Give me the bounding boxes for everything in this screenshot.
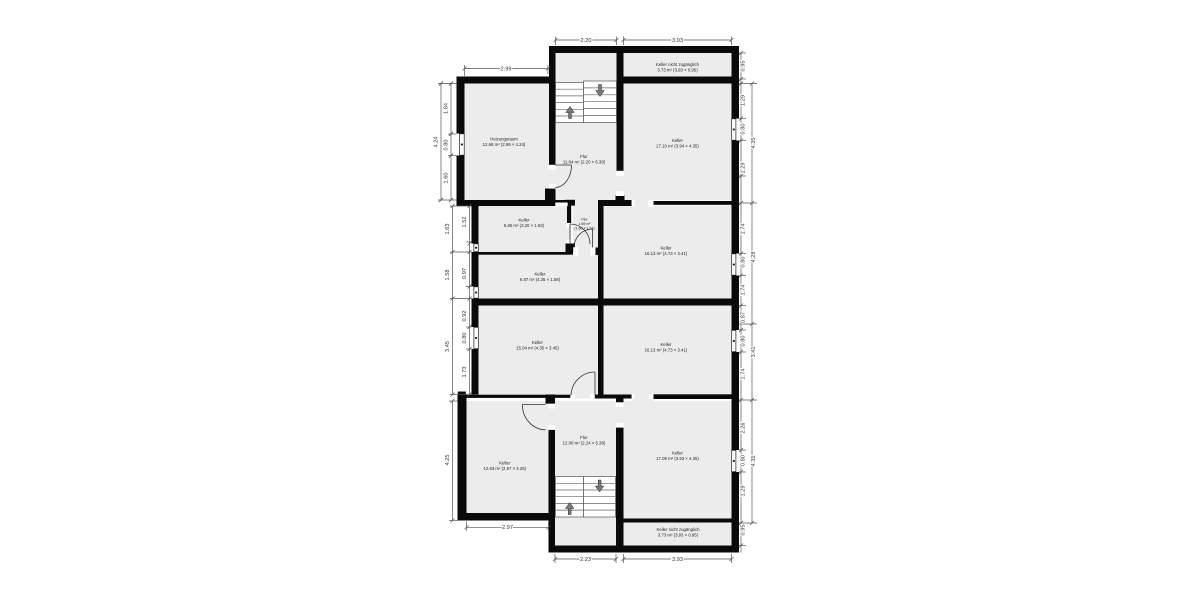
svg-text:1.60: 1.60 xyxy=(444,173,450,184)
svg-text:0.95: 0.95 xyxy=(741,61,747,72)
svg-text:Keller: Keller xyxy=(672,138,684,143)
svg-text:Keller: Keller xyxy=(532,340,544,345)
svg-text:12.68 m² (2.99 × 4.24): 12.68 m² (2.99 × 4.24) xyxy=(483,142,526,147)
svg-text:2.97: 2.97 xyxy=(502,525,513,531)
svg-text:6.87 m² (4.35 × 1.58): 6.87 m² (4.35 × 1.58) xyxy=(520,277,561,282)
svg-text:0.80: 0.80 xyxy=(741,336,747,347)
svg-text:4.35: 4.35 xyxy=(751,138,757,149)
svg-text:0.80: 0.80 xyxy=(741,124,747,135)
svg-text:3.93: 3.93 xyxy=(672,38,683,44)
svg-text:16.13 m² (4.73 × 3.41): 16.13 m² (4.73 × 3.41) xyxy=(645,251,688,256)
svg-text:0.80: 0.80 xyxy=(741,257,747,268)
svg-text:4.24: 4.24 xyxy=(434,137,440,148)
svg-text:Keller: Keller xyxy=(672,451,684,456)
svg-text:0.80: 0.80 xyxy=(462,333,468,344)
svg-text:0.92: 0.92 xyxy=(462,311,468,322)
svg-text:1.52: 1.52 xyxy=(462,217,468,228)
svg-text:3.41: 3.41 xyxy=(751,347,757,358)
svg-text:(1.60 × 1.54): (1.60 × 1.54) xyxy=(574,227,594,231)
svg-text:3.73 m² (3.93 × 0.95): 3.73 m² (3.93 × 0.95) xyxy=(658,532,699,537)
svg-text:5.65 m² (3.20 × 1.63): 5.65 m² (3.20 × 1.63) xyxy=(504,223,545,228)
svg-text:12.00 m² (2.24 × 5.38): 12.00 m² (2.24 × 5.38) xyxy=(563,440,606,445)
svg-text:Keller nicht zugänglich: Keller nicht zugänglich xyxy=(657,527,701,532)
svg-text:Keller: Keller xyxy=(535,272,547,277)
svg-text:1.74: 1.74 xyxy=(741,369,747,380)
svg-text:Keller nicht zugänglich: Keller nicht zugänglich xyxy=(656,62,700,67)
svg-text:3.73 m² (3.93 × 0.95): 3.73 m² (3.93 × 0.95) xyxy=(657,67,698,72)
svg-text:2.26: 2.26 xyxy=(741,423,747,434)
svg-text:0.87: 0.87 xyxy=(741,312,747,323)
svg-text:4.25: 4.25 xyxy=(445,455,451,466)
svg-text:3.45: 3.45 xyxy=(445,341,451,352)
svg-text:0.80: 0.80 xyxy=(444,140,450,151)
svg-text:16.13 m² (4.73 × 3.41): 16.13 m² (4.73 × 3.41) xyxy=(645,347,688,352)
svg-text:Flur: Flur xyxy=(580,435,588,440)
svg-text:Heizungsraum: Heizungsraum xyxy=(490,137,518,142)
svg-text:17.10 m² (3.94 × 4.35): 17.10 m² (3.94 × 4.35) xyxy=(656,143,699,148)
svg-text:12.63 m² (2.97 × 4.25): 12.63 m² (2.97 × 4.25) xyxy=(483,466,526,471)
svg-text:4.28: 4.28 xyxy=(751,252,757,263)
svg-text:1.74: 1.74 xyxy=(741,285,747,296)
svg-text:Keller: Keller xyxy=(499,461,511,466)
svg-text:1.73: 1.73 xyxy=(462,367,468,378)
svg-text:17.09 m² (3.93 × 4.35): 17.09 m² (3.93 × 4.35) xyxy=(656,456,699,461)
svg-text:11.84 m² (2.20 × 5.38): 11.84 m² (2.20 × 5.38) xyxy=(563,159,606,164)
svg-text:1.84: 1.84 xyxy=(444,103,450,114)
svg-text:Flur: Flur xyxy=(580,154,588,159)
svg-text:1.69 m²: 1.69 m² xyxy=(578,222,591,226)
svg-text:Keller: Keller xyxy=(661,246,673,251)
svg-text:2.99: 2.99 xyxy=(501,66,512,72)
svg-text:15.04 m² (4.35 × 3.45): 15.04 m² (4.35 × 3.45) xyxy=(516,345,559,350)
svg-text:0.80: 0.80 xyxy=(741,455,747,466)
svg-text:1.63: 1.63 xyxy=(445,224,451,235)
svg-text:2.23: 2.23 xyxy=(580,557,591,563)
svg-text:1.29: 1.29 xyxy=(741,163,747,174)
svg-text:0.95: 0.95 xyxy=(741,525,747,536)
svg-text:0.97: 0.97 xyxy=(462,268,468,279)
svg-text:Flur: Flur xyxy=(581,218,588,222)
svg-text:2.20: 2.20 xyxy=(581,38,592,44)
svg-text:3.93: 3.93 xyxy=(672,557,683,563)
svg-text:1.29: 1.29 xyxy=(741,95,747,106)
svg-text:1.29: 1.29 xyxy=(741,486,747,497)
svg-text:4.35: 4.35 xyxy=(751,456,757,467)
svg-text:1.58: 1.58 xyxy=(445,270,451,281)
svg-text:Keller: Keller xyxy=(661,342,673,347)
svg-text:1.74: 1.74 xyxy=(741,224,747,235)
svg-text:Keller: Keller xyxy=(519,218,531,223)
